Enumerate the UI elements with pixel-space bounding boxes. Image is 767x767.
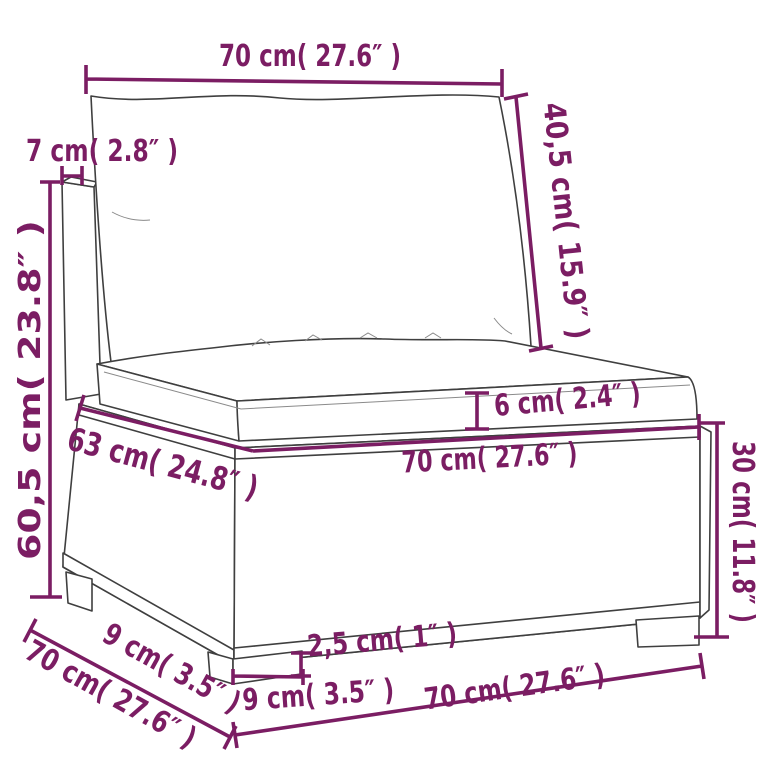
dim-base-width-label: 70 cm( 27.6″ ) <box>422 658 607 718</box>
dim-back-height-label: 40,5 cm( 15.9″ ) <box>536 101 596 341</box>
dimension-diagram: 70 cm( 27.6″ ) 7 cm( 2.8″ ) 60,5 cm( 23.… <box>0 0 767 767</box>
dim-back-post-width-label: 7 cm( 2.8″ ) <box>26 134 178 169</box>
dim-front-leg-width: 9 cm( 3.5″ ) <box>233 669 395 718</box>
dim-total-height: 60,5 cm( 23.8″ ) <box>13 182 62 597</box>
dim-total-height-label: 60,5 cm( 23.8″ ) <box>13 220 48 560</box>
front-right-leg <box>636 616 699 647</box>
dim-top-width-label: 70 cm( 27.6″ ) <box>219 39 401 74</box>
back-left-leg <box>66 572 92 611</box>
sofa-dimension-drawing: 70 cm( 27.6″ ) 7 cm( 2.8″ ) 60,5 cm( 23.… <box>0 0 767 767</box>
back-post <box>62 177 101 400</box>
dim-top-width: 70 cm( 27.6″ ) <box>86 39 502 97</box>
dim-base-height-label: 30 cm( 11.8″ ) <box>725 441 760 623</box>
